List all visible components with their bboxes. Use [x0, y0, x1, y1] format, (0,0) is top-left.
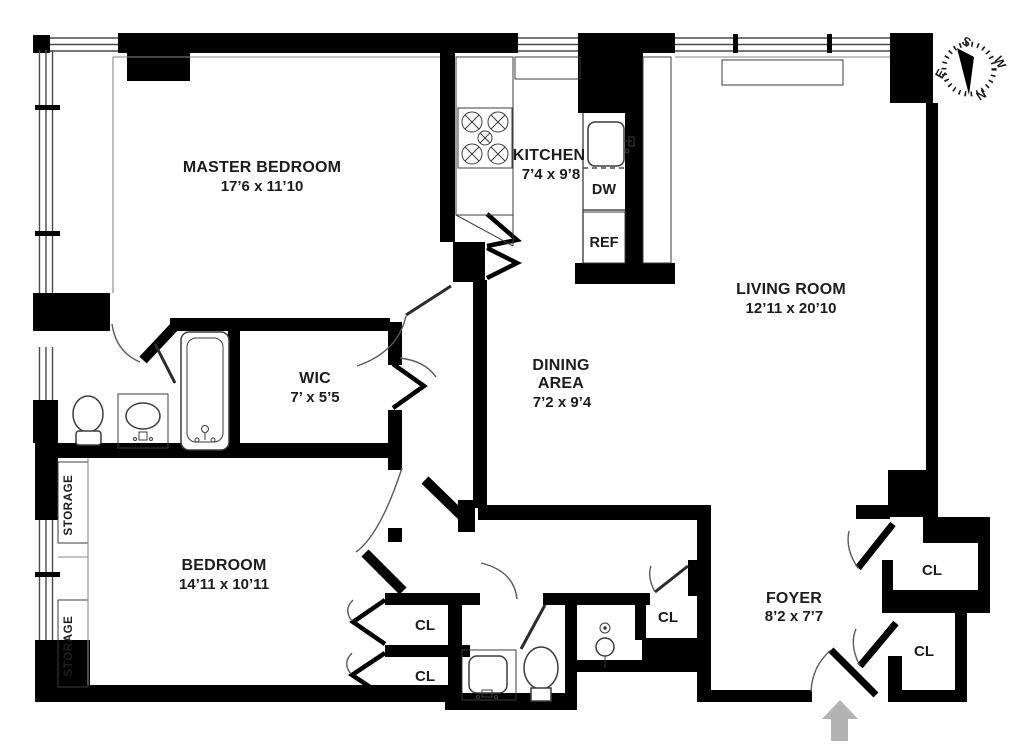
- dining-area-dims: 7’2 x 9’4: [533, 394, 592, 411]
- foyer-label: FOYER: [766, 590, 822, 607]
- window-top-left: [50, 38, 118, 51]
- window-living-top: [675, 34, 890, 85]
- closet-label-bedroom-2: CL: [415, 668, 435, 685]
- kitchen-counter: [456, 57, 513, 246]
- toilet-bath2-icon: [524, 647, 558, 701]
- wic-dims: 7’ x 5’5: [290, 389, 339, 406]
- dishwasher-label: DW: [592, 182, 616, 198]
- dining-area-label-line1: DINING: [532, 357, 589, 374]
- compass-needle-icon: [957, 48, 974, 95]
- compass-west: W: [991, 54, 1009, 71]
- closet-label-foyer-top: CL: [922, 562, 942, 579]
- living-room-label: LIVING ROOM: [736, 281, 846, 298]
- toilet-master-icon: [73, 396, 103, 445]
- bathroom-door: [481, 563, 545, 649]
- compass-north: N: [974, 87, 989, 104]
- compass-rose: S W N E: [932, 34, 1008, 104]
- bathtub-icon: [181, 332, 229, 450]
- window-bath-left: [40, 347, 53, 400]
- vanity-bath2-icon: [462, 650, 516, 700]
- master-bedroom-dims: 17’6 x 11’10: [221, 178, 304, 195]
- kitchen-window-sill: [515, 57, 580, 79]
- dining-area-label-line2: AREA: [538, 375, 584, 392]
- living-room-dims: 12’11 x 20’10: [746, 300, 837, 317]
- vanity-master-icon: [118, 394, 168, 448]
- bedroom-dims: 14’11 x 10’11: [179, 576, 269, 593]
- hall-closet-door: [650, 566, 688, 592]
- window-kitchen-top: [515, 38, 580, 79]
- window-master-left: [35, 50, 60, 293]
- bedroom-label: BEDROOM: [182, 557, 267, 574]
- closet-label-foyer-bottom: CL: [914, 643, 934, 660]
- refrigerator-label: REF: [590, 235, 619, 251]
- kitchen-dims: 7’4 x 9’8: [522, 166, 580, 183]
- floor-plan: MASTER BEDROOM 17’6 x 11’10 KITCHEN 7’4 …: [0, 0, 1024, 749]
- entry-arrow-icon: [822, 700, 858, 741]
- window-bedroom-left: [35, 520, 60, 640]
- storage-label-1: STORAGE: [63, 475, 75, 536]
- bedroom-closet-doors: [347, 600, 385, 697]
- master-bedroom-label: MASTER BEDROOM: [183, 159, 341, 176]
- foyer-dims: 8’2 x 7’7: [765, 608, 823, 625]
- stove-icon: [458, 108, 512, 168]
- kitchen-shaft: [643, 57, 671, 263]
- wic-door: [393, 358, 436, 408]
- wic-label: WIC: [299, 370, 331, 387]
- storage-label-2: STORAGE: [63, 616, 75, 677]
- floor-plan-canvas: MASTER BEDROOM 17’6 x 11’10 KITCHEN 7’4 …: [0, 0, 1024, 749]
- closet-label-bedroom-1: CL: [415, 617, 435, 634]
- kitchen-label: KITCHEN: [513, 147, 586, 164]
- closet-label-hall: CL: [658, 609, 678, 626]
- living-window-sill: [722, 60, 843, 85]
